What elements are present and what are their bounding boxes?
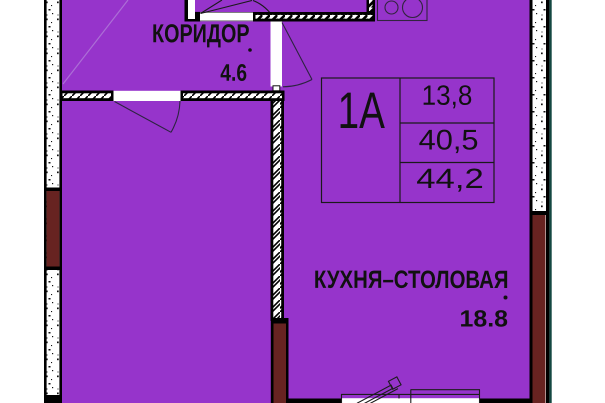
svg-text:18.8: 18.8 (460, 305, 509, 331)
svg-text:КУХНЯ–СТОЛОВАЯ: КУХНЯ–СТОЛОВАЯ (314, 266, 509, 294)
svg-text:4.6: 4.6 (220, 60, 247, 87)
svg-text:1А: 1А (338, 81, 386, 139)
svg-text:13,8: 13,8 (422, 80, 473, 111)
svg-text:40,5: 40,5 (419, 124, 479, 156)
svg-text:44,2: 44,2 (416, 163, 484, 194)
svg-text:КОРИДОР: КОРИДОР (152, 18, 249, 48)
